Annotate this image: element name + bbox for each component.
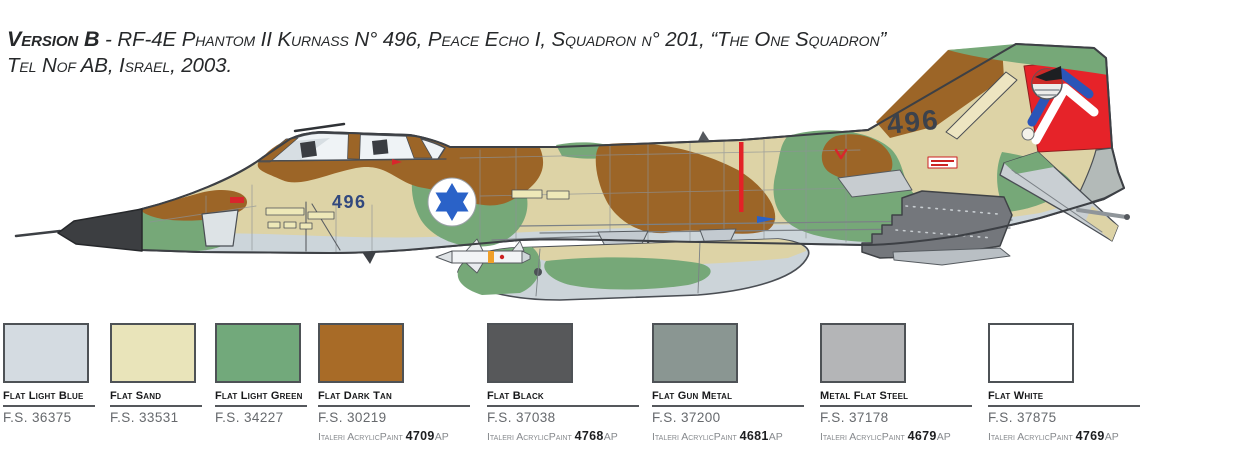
paint-brand: Italeri AcrylicPaint bbox=[652, 431, 737, 443]
paint-name: Flat Sand bbox=[110, 390, 202, 402]
divider bbox=[487, 405, 639, 407]
paint-palette: Flat Light Blue F.S. 36375 Flat Sand F.S… bbox=[0, 0, 1240, 469]
federal-standard-code: F.S. 37200 bbox=[652, 410, 804, 425]
divider bbox=[988, 405, 1140, 407]
federal-standard-code: F.S. 33531 bbox=[110, 410, 202, 425]
paint-code-suffix: AP bbox=[769, 431, 783, 443]
paint-name: Flat Light Blue bbox=[3, 390, 95, 402]
paint-swatch-color bbox=[988, 323, 1074, 383]
italeri-paint-code: Italeri AcrylicPaint 4679AP bbox=[820, 429, 972, 443]
divider bbox=[3, 405, 95, 407]
federal-standard-code: F.S. 37178 bbox=[820, 410, 972, 425]
paint-name: Flat Dark Tan bbox=[318, 390, 470, 402]
paint-swatch: Flat Dark Tan F.S. 30219 Italeri Acrylic… bbox=[318, 323, 470, 443]
paint-brand: Italeri AcrylicPaint bbox=[820, 431, 905, 443]
paint-name: Flat White bbox=[988, 390, 1140, 402]
divider bbox=[215, 405, 307, 407]
federal-standard-code: F.S. 37875 bbox=[988, 410, 1140, 425]
federal-standard-code: F.S. 34227 bbox=[215, 410, 307, 425]
paint-swatch: Metal Flat Steel F.S. 37178 Italeri Acry… bbox=[820, 323, 972, 443]
paint-swatch-color bbox=[3, 323, 89, 383]
paint-code: 4769 bbox=[1076, 429, 1105, 443]
paint-brand: Italeri AcrylicPaint bbox=[318, 431, 403, 443]
paint-brand: Italeri AcrylicPaint bbox=[988, 431, 1073, 443]
federal-standard-code: F.S. 37038 bbox=[487, 410, 639, 425]
federal-standard-code: F.S. 36375 bbox=[3, 410, 95, 425]
paint-code-suffix: AP bbox=[1105, 431, 1119, 443]
divider bbox=[820, 405, 972, 407]
paint-swatch-color bbox=[652, 323, 738, 383]
italeri-paint-code: Italeri AcrylicPaint 4768AP bbox=[487, 429, 639, 443]
paint-swatch: Flat Light Green F.S. 34227 bbox=[215, 323, 307, 425]
instruction-sheet-page: Version B - RF-4E Phantom II Kurnass N° … bbox=[0, 0, 1240, 469]
divider bbox=[110, 405, 202, 407]
paint-swatch: Flat White F.S. 37875 Italeri AcrylicPai… bbox=[988, 323, 1140, 443]
paint-name: Flat Light Green bbox=[215, 390, 307, 402]
paint-swatch-color bbox=[318, 323, 404, 383]
paint-code: 4681 bbox=[740, 429, 769, 443]
divider bbox=[318, 405, 470, 407]
paint-name: Metal Flat Steel bbox=[820, 390, 972, 402]
italeri-paint-code: Italeri AcrylicPaint 4709AP bbox=[318, 429, 470, 443]
paint-swatch-color bbox=[820, 323, 906, 383]
paint-swatch-color bbox=[110, 323, 196, 383]
paint-swatch: Flat Light Blue F.S. 36375 bbox=[3, 323, 95, 425]
paint-swatch: Flat Gun Metal F.S. 37200 Italeri Acryli… bbox=[652, 323, 804, 443]
italeri-paint-code: Italeri AcrylicPaint 4769AP bbox=[988, 429, 1140, 443]
paint-code-suffix: AP bbox=[937, 431, 951, 443]
italeri-paint-code: Italeri AcrylicPaint 4681AP bbox=[652, 429, 804, 443]
paint-code-suffix: AP bbox=[604, 431, 618, 443]
paint-code: 4709 bbox=[406, 429, 435, 443]
paint-swatch-color bbox=[215, 323, 301, 383]
paint-swatch-color bbox=[487, 323, 573, 383]
paint-name: Flat Gun Metal bbox=[652, 390, 804, 402]
paint-swatch: Flat Sand F.S. 33531 bbox=[110, 323, 202, 425]
paint-brand: Italeri AcrylicPaint bbox=[487, 431, 572, 443]
federal-standard-code: F.S. 30219 bbox=[318, 410, 470, 425]
paint-name: Flat Black bbox=[487, 390, 639, 402]
divider bbox=[652, 405, 804, 407]
paint-code: 4768 bbox=[575, 429, 604, 443]
paint-code-suffix: AP bbox=[435, 431, 449, 443]
paint-code: 4679 bbox=[908, 429, 937, 443]
paint-swatch: Flat Black F.S. 37038 Italeri AcrylicPai… bbox=[487, 323, 639, 443]
